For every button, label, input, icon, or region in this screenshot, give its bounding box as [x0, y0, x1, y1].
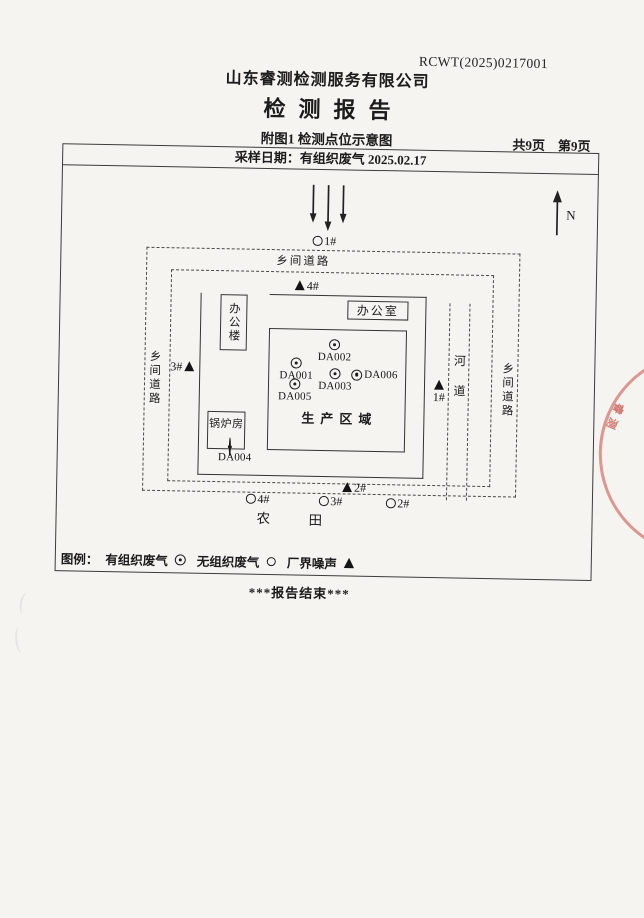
fugitive-point-4-label: 4#: [257, 493, 269, 505]
noise-point-1-label: 1#: [433, 391, 445, 403]
stack-point-da002: DA002: [318, 339, 352, 364]
noise-point-4-label: 4#: [307, 279, 319, 291]
unorganized-gas-icon: [313, 236, 323, 246]
unorganized-gas-icon: [266, 557, 276, 567]
noise-point-1: ▲ 1#: [433, 378, 445, 403]
scanned-sheet: RCWT(2025)0217001 山东睿测检测服务有限公司 检测报告 附图1 …: [0, 0, 644, 918]
legend: 图例： 有组织废气 无组织废气 厂界噪声 ▲: [61, 548, 355, 572]
office-room-label: 办公室: [357, 302, 399, 320]
noise-icon: ▲: [184, 359, 194, 372]
company-seal-stamp: [597, 349, 644, 559]
organized-gas-icon: [175, 554, 186, 565]
noise-icon: ▲: [342, 480, 352, 493]
report-page: RCWT(2025)0217001 山东睿测检测服务有限公司 检测报告 附图1 …: [0, 0, 644, 918]
noise-point-2-label: 2#: [354, 481, 366, 493]
noise-icon: ▲: [344, 556, 355, 570]
noise-icon: ▲: [295, 278, 305, 291]
noise-point-3-label: 3#: [170, 360, 182, 372]
noise-point-4: ▲ 4#: [295, 278, 319, 291]
organized-gas-icon: [291, 357, 302, 368]
legend-unorganized-label: 无组织废气: [197, 551, 260, 571]
organized-gas-icon: [329, 339, 340, 350]
legend-title: 图例：: [61, 548, 99, 568]
stack-point-da002-label: DA002: [318, 351, 352, 364]
fugitive-point-4: 4#: [246, 493, 270, 505]
office-building-label: 办公楼: [225, 302, 242, 343]
fugitive-point-2-label: 2#: [397, 497, 409, 509]
organized-gas-icon: [330, 368, 341, 379]
noise-point-3: 3# ▲: [170, 359, 194, 372]
farmland-label-tian: 田: [308, 509, 322, 529]
production-area-label: 生产区域: [267, 407, 405, 429]
stack-point-da003-label: DA003: [318, 380, 352, 393]
stack-point-da006: DA006: [351, 369, 398, 382]
road-label-left: 乡间道路: [146, 350, 163, 406]
organized-gas-icon: [351, 369, 362, 380]
river-label: 河道: [450, 354, 468, 414]
stack-point-da005: DA005: [278, 378, 312, 403]
stack-point-da003: DA003: [318, 368, 352, 393]
wind-arrows-icon: [307, 182, 354, 235]
stack-point-da005-label: DA005: [278, 390, 312, 403]
road-label-top: 乡间道路: [253, 252, 353, 270]
office-building: 办公楼: [220, 294, 248, 350]
north-arrow-icon: N: [543, 189, 586, 240]
end-of-report: ***报告结束***: [0, 577, 602, 607]
farmland-label-nong: 农: [256, 507, 270, 527]
unorganized-gas-icon: [246, 494, 256, 504]
fugitive-point-1: 1#: [313, 235, 337, 247]
fugitive-point-1-label: 1#: [324, 235, 336, 247]
boiler-room-label: 锅炉房: [209, 415, 244, 449]
organized-gas-icon: [289, 378, 300, 389]
fugitive-point-2: 2#: [386, 497, 410, 509]
legend-organized-label: 有组织废气: [105, 549, 168, 569]
fugitive-point-3: 3#: [319, 495, 343, 507]
road-label-right: 乡间道路: [498, 362, 515, 418]
stack-point-da006-label: DA006: [364, 369, 398, 382]
figure-box: 采样日期：有组织废气 2025.02.17 N 1# 乡间道路 乡间道路 乡间道…: [55, 143, 600, 581]
ink-smudge: [14, 626, 26, 653]
north-label: N: [566, 207, 576, 222]
noise-point-2: ▲ 2#: [342, 480, 366, 493]
fugitive-point-3-label: 3#: [330, 495, 342, 507]
legend-noise-label: 厂界噪声: [287, 552, 337, 572]
unorganized-gas-icon: [319, 496, 329, 506]
unorganized-gas-icon: [386, 498, 396, 508]
boiler-room: 锅炉房: [207, 411, 246, 450]
office-room: 办公室: [347, 300, 408, 320]
stack-point-da004-label: DA004: [218, 451, 252, 464]
